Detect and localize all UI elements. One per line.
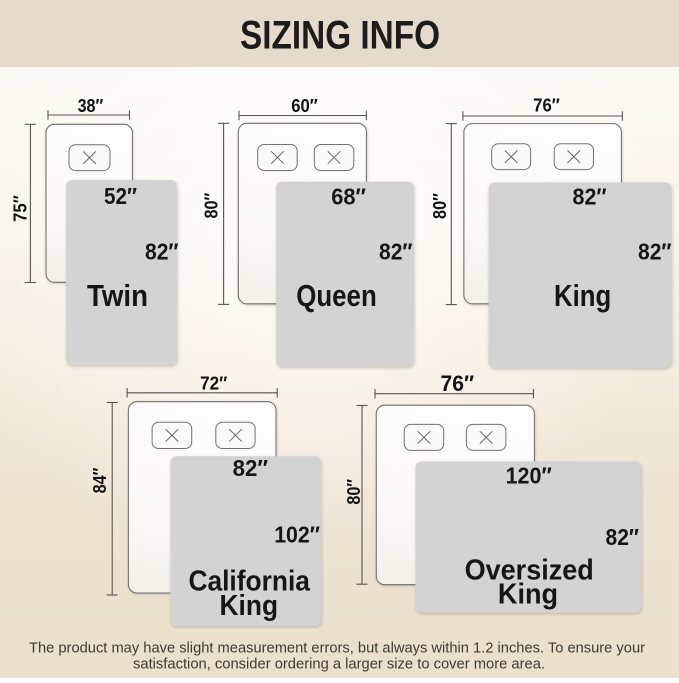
svg-text:82″: 82″ [233,455,268,481]
svg-text:80″: 80″ [201,192,221,218]
svg-text:82″: 82″ [638,239,672,265]
svg-text:82″: 82″ [145,239,179,265]
svg-text:102″: 102″ [274,522,320,548]
svg-text:75″: 75″ [10,195,30,222]
svg-text:King: King [554,278,611,313]
svg-text:80″: 80″ [344,479,364,505]
svg-text:The product may have slight me: The product may have slight measurement … [29,641,645,657]
svg-text:82″: 82″ [379,239,413,265]
svg-text:76″: 76″ [441,371,475,396]
svg-text:King: King [220,590,279,622]
svg-text:60″: 60″ [291,96,318,116]
svg-text:76″: 76″ [533,96,560,116]
svg-text:Twin: Twin [87,278,148,313]
svg-text:King: King [498,579,558,611]
svg-text:68″: 68″ [331,184,366,210]
svg-text:80″: 80″ [430,193,450,219]
svg-text:82″: 82″ [606,524,640,550]
svg-text:satisfaction, consider orderin: satisfaction, consider ordering a larger… [133,657,545,673]
svg-text:SIZING INFO: SIZING INFO [240,14,440,58]
svg-text:120″: 120″ [506,463,552,489]
svg-text:38″: 38″ [78,96,104,116]
svg-text:52″: 52″ [104,183,137,209]
svg-text:84″: 84″ [90,467,110,493]
svg-text:72″: 72″ [200,374,228,394]
svg-text:82″: 82″ [573,184,607,210]
svg-text:Queen: Queen [296,278,377,313]
